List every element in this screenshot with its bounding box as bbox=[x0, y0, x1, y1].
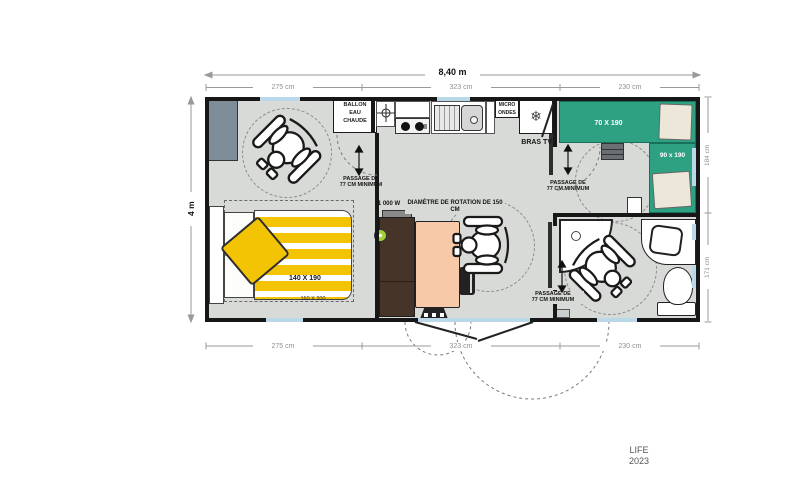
dim-bottom-3: 230 cm bbox=[600, 342, 660, 351]
dim-top-3: 230 cm bbox=[600, 83, 660, 92]
door-arc-entrance-right bbox=[455, 322, 609, 399]
plan-overlay bbox=[0, 0, 796, 480]
tv-arm bbox=[542, 104, 553, 137]
model-year: 2023 bbox=[610, 456, 668, 467]
dim-right-1: 184 cm bbox=[701, 133, 715, 177]
dim-bottom-2: 323 cm bbox=[431, 342, 491, 351]
model-name: LIFE bbox=[610, 445, 668, 456]
dim-overall-depth: 4 m bbox=[183, 192, 199, 226]
entrance-door-leaf-right bbox=[478, 322, 533, 341]
dim-top-2: 323 cm bbox=[431, 83, 491, 92]
dim-right-2: 171 cm bbox=[701, 245, 715, 289]
model-name-block: LIFE 2023 bbox=[610, 445, 668, 468]
dim-top-1: 275 cm bbox=[253, 83, 313, 92]
entrance-door-leaf-left bbox=[415, 322, 477, 339]
dim-bottom-1: 275 cm bbox=[253, 342, 313, 351]
door-arc-bedroom2 bbox=[557, 147, 600, 190]
floor-plan-canvas: 140 X 190 160 X 200 BALLON EAU CHAUDE PA… bbox=[0, 0, 796, 480]
dim-overall-width: 8,40 m bbox=[425, 66, 480, 78]
